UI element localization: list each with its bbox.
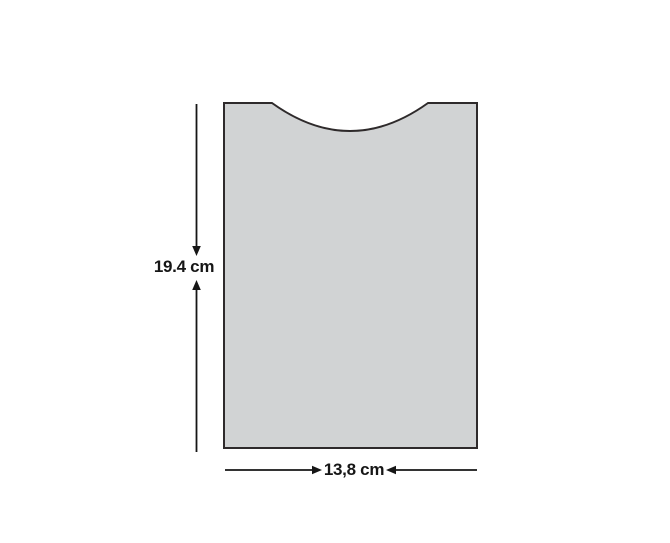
diagram-canvas: 19.4 cm 13,8 cm xyxy=(0,0,670,543)
width-dimension-label: 13,8 cm xyxy=(324,460,384,480)
height-dimension-label: 19.4 cm xyxy=(154,257,214,277)
arrow-down-icon xyxy=(192,246,201,256)
arrow-left-icon xyxy=(386,466,396,475)
arrow-right-icon xyxy=(312,466,322,475)
arrow-up-icon xyxy=(192,280,201,290)
sleeve-shape xyxy=(224,103,477,448)
